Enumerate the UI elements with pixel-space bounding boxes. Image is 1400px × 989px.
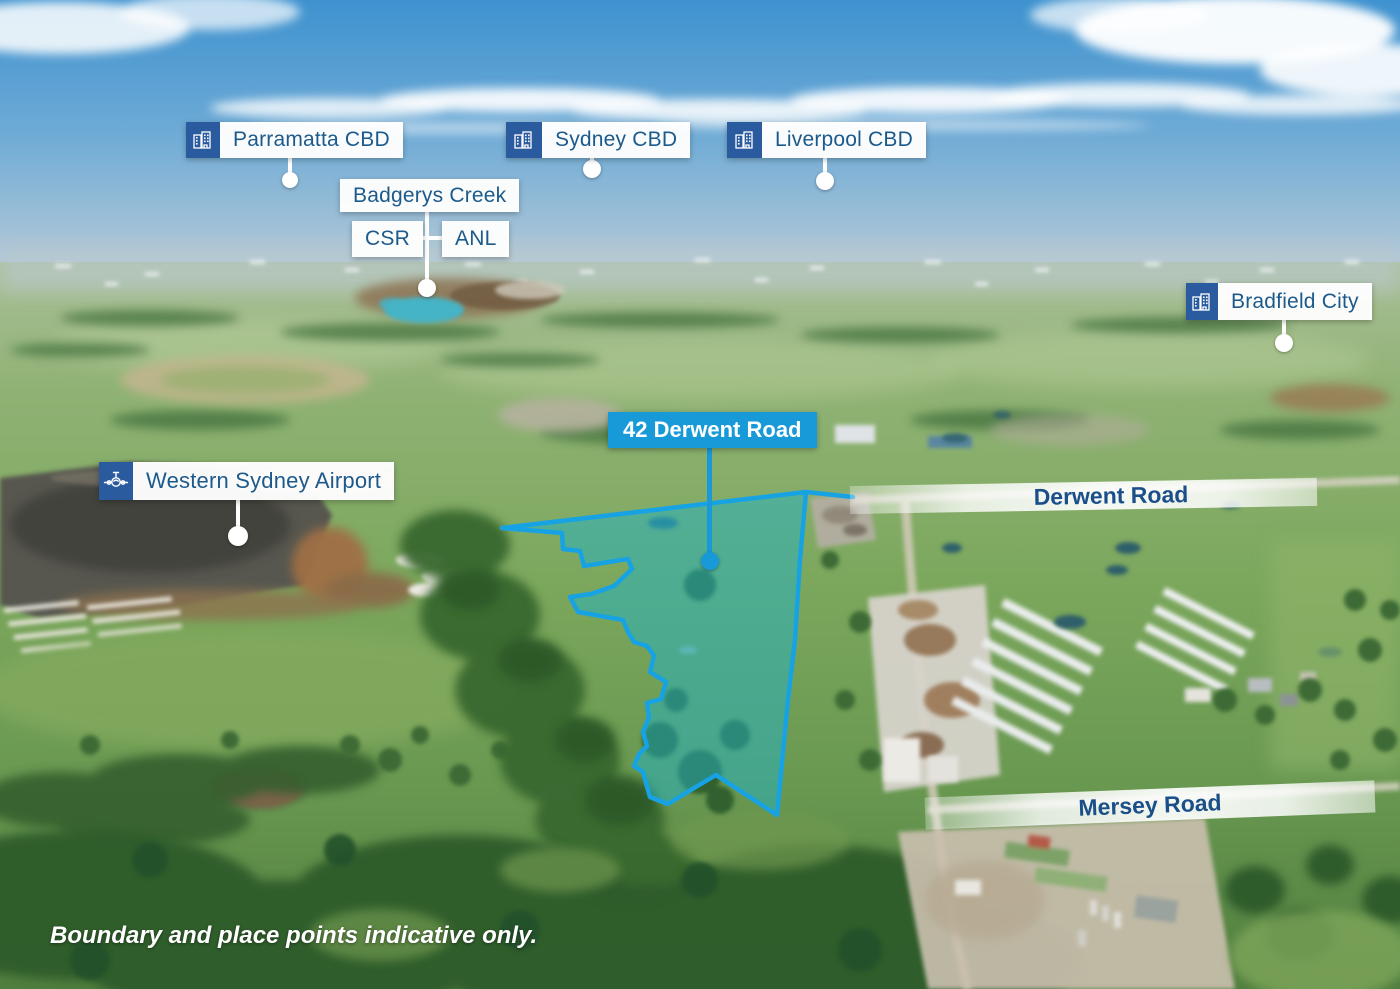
map-point-liverpool [816, 172, 834, 190]
label-liverpool-cbd: Liverpool CBD [727, 122, 926, 158]
city-buildings-icon [727, 122, 762, 158]
map-point-airport [228, 526, 248, 546]
label-text: CSR [352, 221, 423, 257]
label-property-address: 42 Derwent Road [608, 412, 817, 448]
label-text: 42 Derwent Road [608, 412, 817, 448]
label-text: Badgerys Creek [340, 179, 519, 212]
label-text: Liverpool CBD [762, 122, 926, 158]
label-badgerys-creek: Badgerys Creek [340, 179, 519, 212]
leader-line-badgerys-creek [425, 209, 429, 281]
road-name: Derwent Road [1033, 481, 1188, 511]
label-sydney-cbd: Sydney CBD [506, 122, 690, 158]
disclaimer-text: Boundary and place points indicative onl… [50, 922, 537, 950]
label-text: ANL [442, 221, 509, 257]
label-parramatta-cbd: Parramatta CBD [186, 122, 403, 158]
label-western-sydney-airport: Western Sydney Airport [99, 462, 394, 500]
map-point-sydney [583, 160, 601, 178]
label-text: Parramatta CBD [220, 122, 403, 158]
label-text: Sydney CBD [542, 122, 690, 158]
aerial-property-map: Parramatta CBD Sydney CBD Liverpool CBD … [0, 0, 1400, 989]
label-anl: ANL [442, 221, 509, 257]
leader-line-airport [236, 499, 240, 529]
leader-line-property [707, 447, 712, 554]
label-text: Bradfield City [1218, 283, 1372, 320]
map-point-parramatta [282, 172, 298, 188]
map-point-property [701, 552, 719, 570]
airplane-icon [99, 462, 133, 500]
city-buildings-icon [506, 122, 542, 158]
map-point-bradfield [1275, 334, 1293, 352]
road-name: Mersey Road [1078, 789, 1222, 821]
city-buildings-icon [1186, 283, 1218, 320]
label-bradfield-city: Bradfield City [1186, 283, 1372, 320]
map-point-badgerys-creek [418, 279, 436, 297]
label-csr: CSR [352, 221, 423, 257]
label-text: Western Sydney Airport [133, 462, 394, 500]
city-buildings-icon [186, 122, 220, 158]
